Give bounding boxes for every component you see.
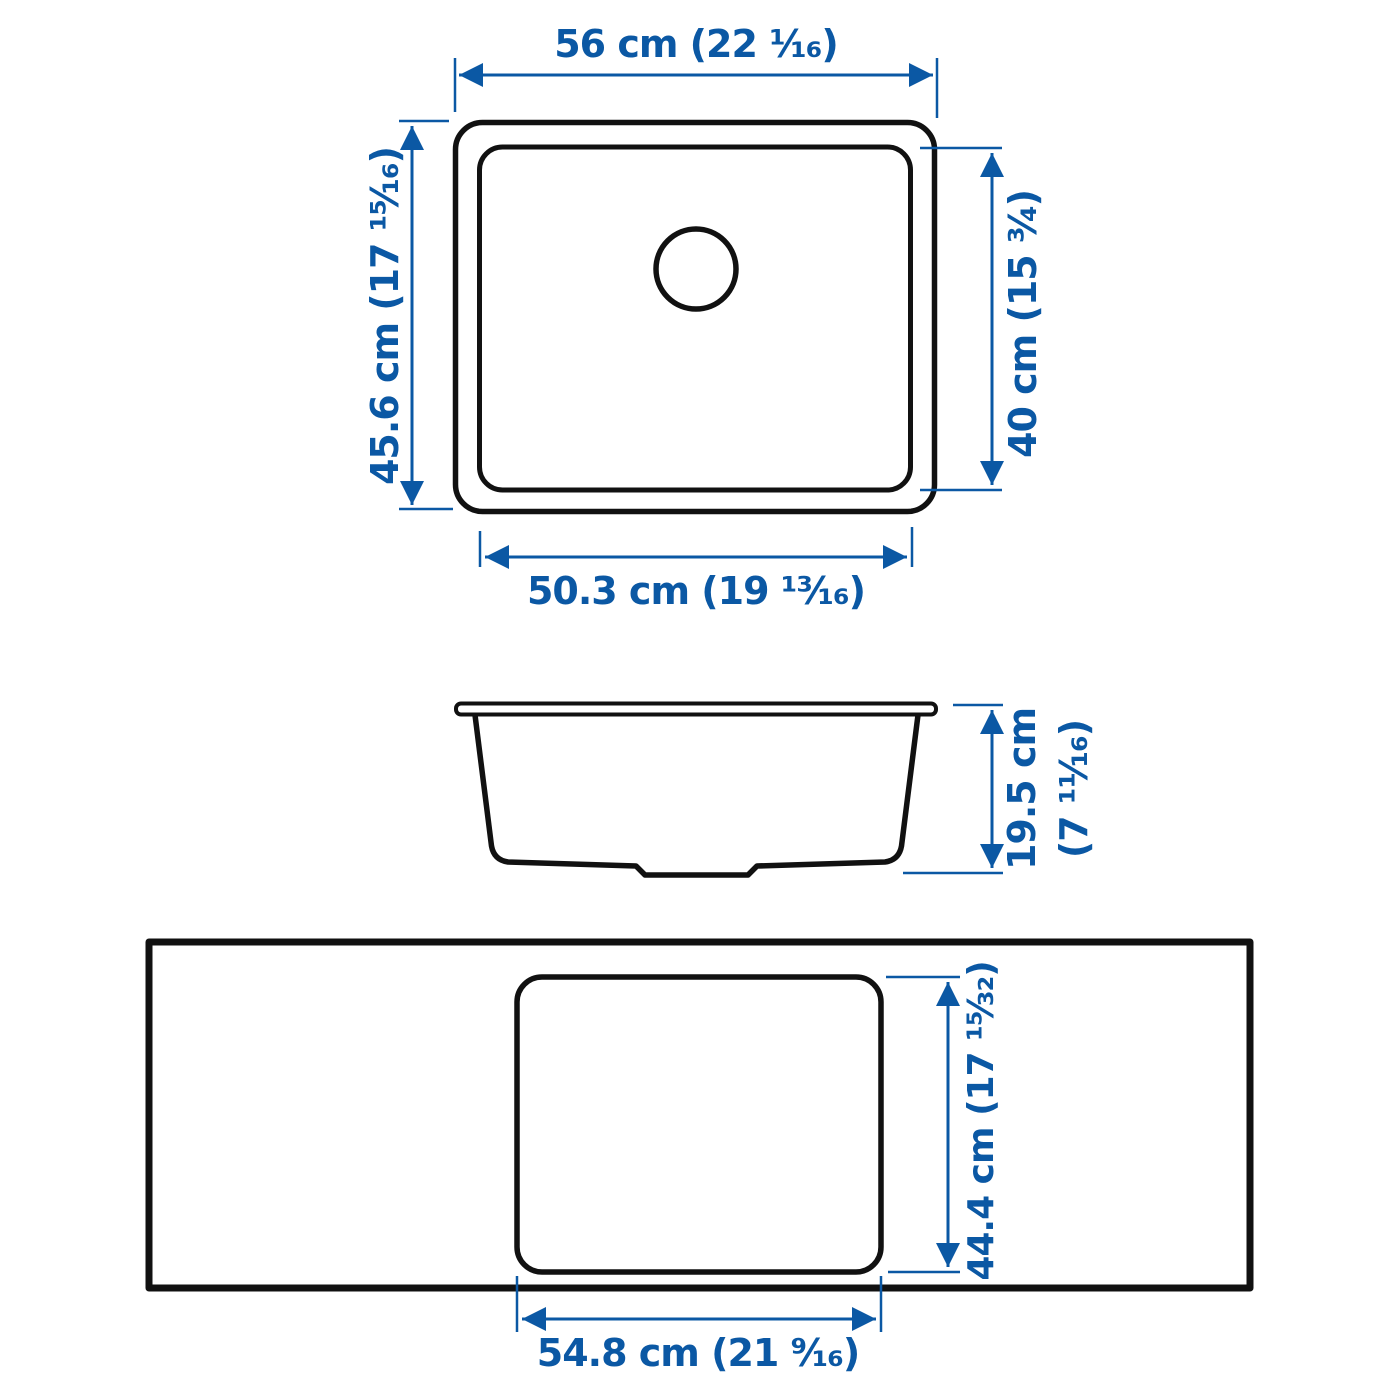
dimension-label-cutout-width: 54.8 cm (21 ⁹⁄₁₆) bbox=[537, 1331, 859, 1375]
side-view: 19.5 cm (7 ¹¹⁄₁₆) bbox=[456, 704, 1096, 876]
top-view: 56 cm (22 ¹⁄₁₆) 45.6 cm (17 ¹⁵⁄₁₆) 40 cm… bbox=[363, 22, 1045, 613]
dimension-label-depth-line1: 19.5 cm bbox=[1000, 708, 1044, 870]
dimension-label-right-height: 40 cm (15 ³⁄₄) bbox=[1001, 190, 1045, 458]
dimension-label-top-width: 56 cm (22 ¹⁄₁₆) bbox=[554, 22, 838, 66]
sink-basin-plan bbox=[480, 147, 911, 490]
dimension-label-left-height: 45.6 cm (17 ¹⁵⁄₁₆) bbox=[363, 147, 407, 485]
dimension-label-depth-line2: (7 ¹¹⁄₁₆) bbox=[1052, 720, 1096, 858]
dimension-label-bottom-width: 50.3 cm (19 ¹³⁄₁₆) bbox=[527, 569, 865, 613]
dimension-top-width: 56 cm (22 ¹⁄₁₆) bbox=[455, 22, 937, 118]
diagram-stage: 56 cm (22 ¹⁄₁₆) 45.6 cm (17 ¹⁵⁄₁₆) 40 cm… bbox=[0, 0, 1400, 1400]
dimension-depth: 19.5 cm (7 ¹¹⁄₁₆) bbox=[903, 705, 1096, 873]
sink-cutout bbox=[517, 977, 881, 1272]
dimension-left-height: 45.6 cm (17 ¹⁵⁄₁₆) bbox=[363, 121, 453, 509]
sink-basin-profile bbox=[475, 715, 918, 875]
dimension-bottom-width: 50.3 cm (19 ¹³⁄₁₆) bbox=[480, 527, 912, 613]
sink-dimension-diagram: 56 cm (22 ¹⁄₁₆) 45.6 cm (17 ¹⁵⁄₁₆) 40 cm… bbox=[0, 0, 1400, 1400]
drain-hole bbox=[656, 229, 736, 309]
dimension-label-cutout-height: 44.4 cm (17 ¹⁵⁄₃₂) bbox=[961, 961, 1002, 1280]
bottom-view: 44.4 cm (17 ¹⁵⁄₃₂) 54.8 cm (21 ⁹⁄₁₆) bbox=[149, 942, 1250, 1375]
dimension-right-height: 40 cm (15 ³⁄₄) bbox=[920, 148, 1045, 490]
sink-rim-profile bbox=[456, 704, 936, 715]
